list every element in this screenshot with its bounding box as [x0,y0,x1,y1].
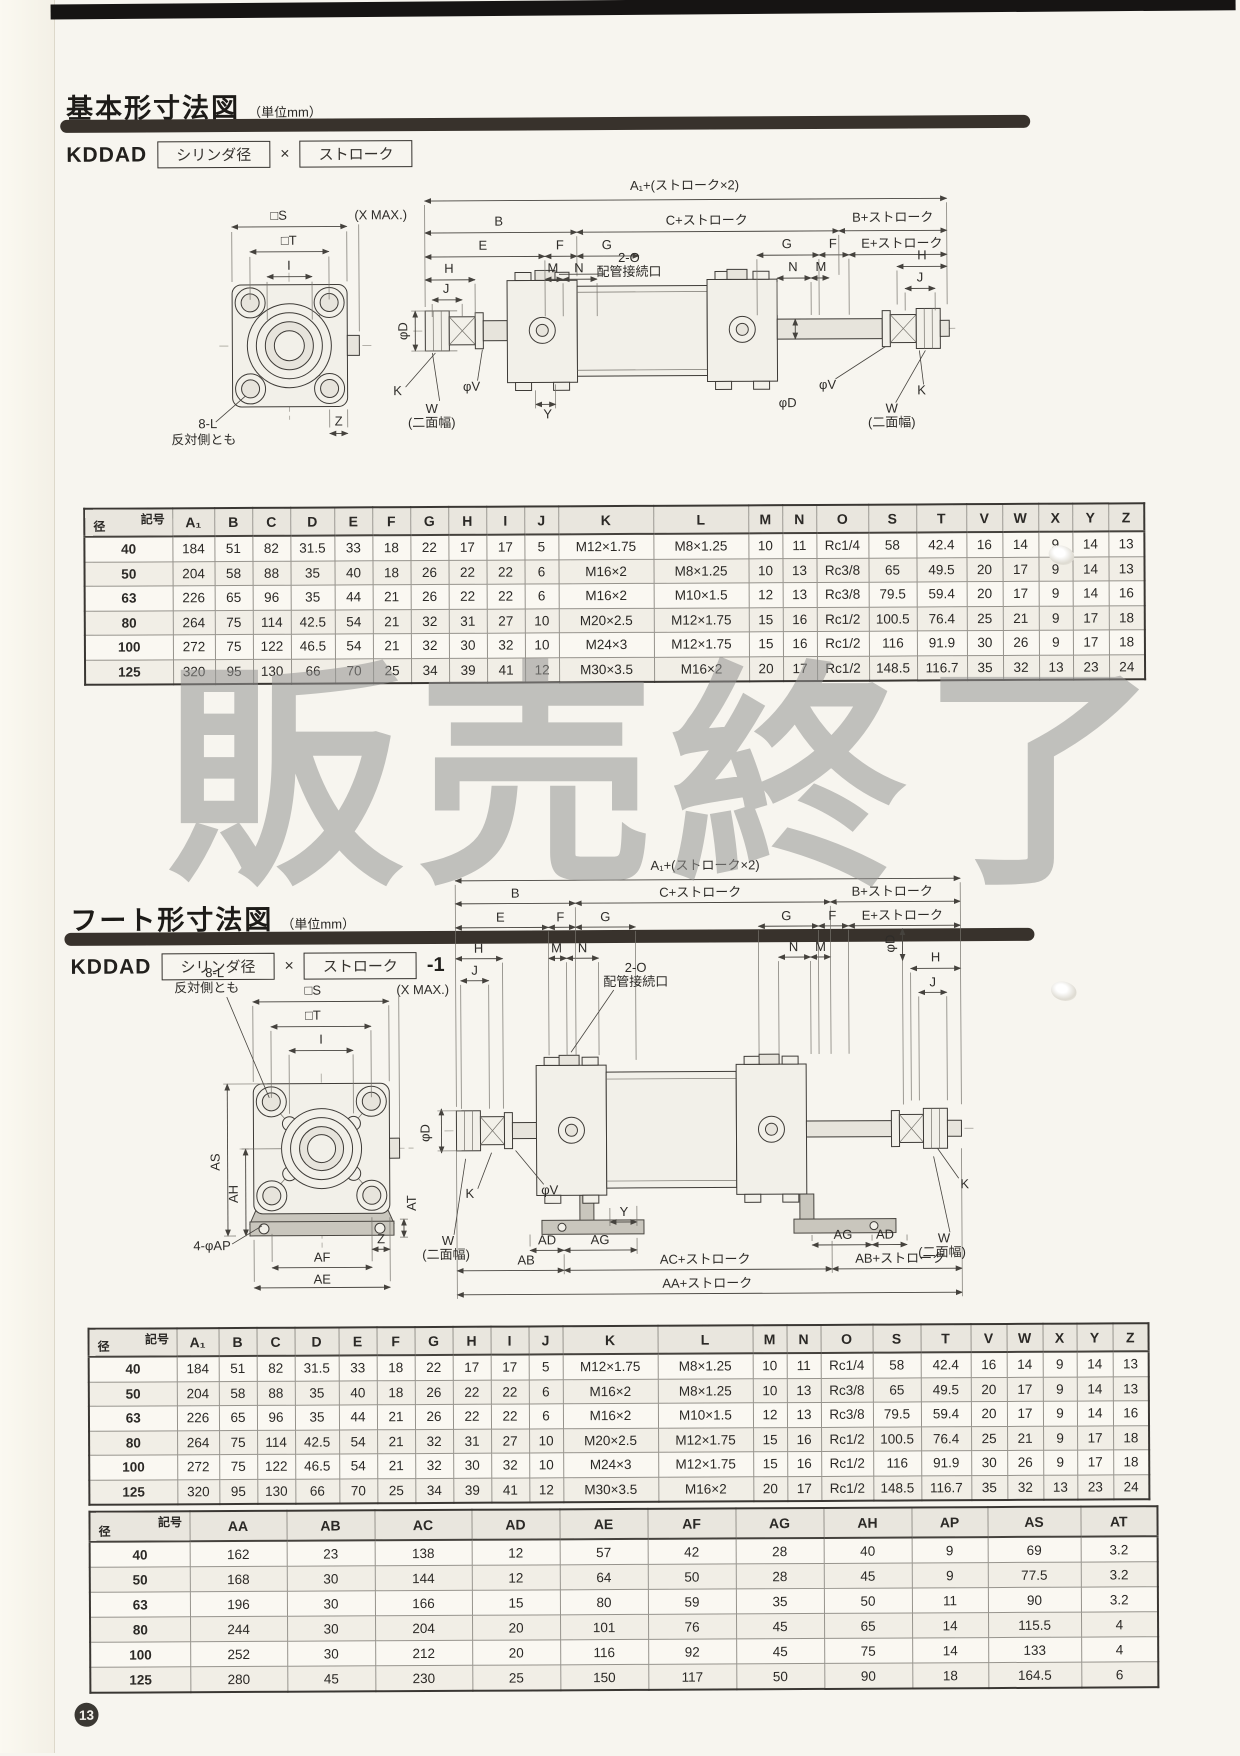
table-cell: 20 [472,1640,560,1665]
column-header: G [414,1327,452,1355]
dim-label-af: AF [314,1250,331,1265]
column-header: A₁ [176,1328,218,1356]
row-header-bore: 63 [90,1592,190,1618]
table-cell: 22 [487,584,525,609]
table-cell: 16 [966,532,1002,557]
table-cell: 114 [253,610,291,635]
table-cell: 30 [971,1450,1007,1475]
table-cell: 92 [648,1639,736,1664]
column-header: E [334,507,372,535]
dim-label-as: AS [208,1153,223,1171]
table-cell: 57 [560,1539,648,1565]
column-header: M [752,1325,786,1353]
table-cell: 14 [1073,581,1109,606]
dim-label-l8: 8-L [198,416,217,431]
table-cell: 41 [487,657,525,682]
table-cell: 15 [753,1452,787,1477]
table-cell: 162 [190,1541,287,1567]
dim-label-ad: AD [876,1227,894,1242]
dim-label-phiv: φV [819,377,837,392]
table-corner-cell: 記号径 [88,1328,176,1356]
foot-dimension-table: 記号径A₁BCDEFGHIJKLMNOSTVWXYZ40184518231.53… [87,1322,1150,1506]
table-cell: 35 [971,1475,1007,1500]
basic-form-technical-drawing: □S(X MAX.)□TIZ8-L反対側ともA₁+(ストローク×2)BC+ストロ… [126,165,1168,470]
table-cell: 17 [1002,557,1038,582]
table-cell: 34 [415,1478,453,1503]
column-header: H [452,1327,490,1355]
row-header-bore: 80 [85,610,173,635]
table-cell: 32 [1007,1475,1043,1500]
table-cell: 13 [1108,556,1144,581]
table-cell: 14 [1077,1401,1113,1426]
row-header-bore: 50 [89,1381,177,1406]
dim-label-i: I [319,1032,323,1047]
table-cell: 65 [824,1613,912,1638]
dim-label-cst: C+ストローク [659,884,741,899]
table-cell: 17 [787,1476,821,1501]
table-cell: M8×1.25 [658,1378,753,1403]
table-cell: Rc3/8 [821,1378,873,1403]
table-cell: 26 [1007,1450,1043,1475]
stroke-box: ストローク [299,140,412,168]
dim-label-h: H [444,261,453,276]
dim-label-n: N [574,260,583,275]
column-header: AB [286,1510,374,1540]
table-cell: 22 [486,559,524,584]
table-cell: 35 [291,585,335,610]
dim-label-m: M [815,259,826,274]
table-cell: 20 [472,1615,560,1640]
table-cell: Rc1/4 [821,1353,873,1378]
dim-label-k: K [917,382,926,397]
table-cell: 21 [377,1429,415,1454]
table-cell: 79.5 [869,582,917,607]
table-cell: 59 [648,1589,736,1614]
row-header-bore: 40 [89,1356,177,1381]
table-cell: 27 [487,608,525,633]
table-cell: 17 [448,535,486,560]
table-cell: M12×1.75 [558,534,653,559]
column-header: C [256,1328,294,1356]
table-cell: 69 [988,1537,1081,1563]
table-cell: 20 [967,581,1003,606]
dim-label-w2: (二面幅) [408,415,456,430]
table-cell: M12×1.75 [563,1354,658,1379]
table-cell: 272 [173,635,215,660]
column-header: E [338,1327,376,1355]
table-cell: 16 [783,631,817,656]
dim-label-k: K [465,1186,474,1201]
table-cell: 18 [377,1355,415,1380]
table-cell: 9 [1043,1377,1077,1402]
dim-label-w: W [938,1230,951,1245]
dim-label-e: E [478,238,487,253]
dim-label-phid: φD [417,1124,432,1142]
table-cell: 49.5 [916,557,966,582]
table-cell: 31 [449,609,487,634]
table-cell: 10 [525,608,559,633]
table-cell: 212 [375,1640,472,1666]
table-cell: 320 [173,659,215,684]
table-cell: 13 [1113,1351,1149,1376]
table-cell: 148.5 [873,1475,921,1500]
table-cell: 41 [491,1477,529,1502]
row-header-bore: 100 [85,635,173,660]
dim-label-w: W [426,401,439,416]
table-cell: 50 [648,1564,736,1589]
table-cell: 33 [334,535,372,560]
row-header-bore: 50 [84,561,172,586]
table-cell: 96 [253,585,291,610]
column-header: AD [471,1509,559,1539]
dim-label-ad: AD [538,1232,556,1247]
table-cell: 100.5 [869,606,917,631]
table-cell: 184 [177,1356,219,1381]
table-cell: 32 [487,633,525,658]
table-cell: 10 [525,633,559,658]
table-cell: 4 [1081,1612,1158,1637]
table-cell: M12×1.75 [654,632,749,657]
table-cell: 45 [736,1638,824,1663]
column-header: W [1002,504,1038,532]
table-cell: 14 [1072,531,1108,556]
table-cell: 12 [472,1539,560,1565]
table-cell: 320 [177,1479,219,1504]
table-cell: 11 [787,1353,821,1378]
table-cell: 17 [453,1355,491,1380]
dim-label-xmax: (X MAX.) [396,982,449,997]
table-corner-cell: 記号径 [89,1511,189,1542]
table-cell: 35 [967,655,1003,680]
table-cell: 15 [749,632,783,657]
row-header-bore: 125 [85,659,173,684]
table-cell: 10 [753,1353,787,1378]
table-cell: 30 [967,630,1003,655]
table-cell: M24×3 [563,1452,658,1477]
table-cell: 13 [782,558,816,583]
table-cell: 17 [1073,630,1109,655]
column-header: V [970,1324,1006,1352]
column-header: G [410,507,448,535]
table-cell: 13 [787,1378,821,1403]
row-header-bore: 125 [90,1667,190,1693]
table-cell: 9 [1043,1352,1077,1377]
table-cell: 70 [335,658,373,683]
table-cell: 76.4 [921,1426,971,1451]
column-header: Y [1076,1323,1112,1351]
dim-label-w: W [886,401,899,416]
table-cell: 58 [219,1381,257,1406]
column-header: V [966,504,1002,532]
table-cell: 16 [787,1427,821,1452]
table-cell: 101 [560,1614,648,1639]
table-cell: 122 [253,634,291,659]
dim-label-j: J [917,269,924,284]
dim-label-l8: 8-L [205,965,224,980]
table-cell: 13 [1043,1475,1077,1500]
dim-label-g: G [602,237,612,252]
table-cell: 116 [560,1639,648,1664]
table-cell: 25 [971,1426,1007,1451]
dim-label-f: F [829,236,837,251]
table-cell: 14 [1002,532,1038,557]
table-cell: 17 [1077,1425,1113,1450]
table-cell: 50 [736,1663,824,1689]
table-cell: 9 [912,1563,988,1588]
dim-label-g: G [600,909,610,924]
table-cell: 42.4 [921,1352,971,1377]
table-cell: 26 [1003,630,1039,655]
dim-label-aast: AA+ストローク [662,1275,752,1290]
table-cell: 13 [1039,655,1073,680]
page-number-badge: 13 [74,1703,98,1727]
table-cell: 30 [449,633,487,658]
column-header: O [820,1325,872,1353]
table-cell: 30 [287,1616,375,1641]
table-cell: Rc1/2 [817,607,869,632]
table-cell: 13 [1113,1376,1149,1401]
table-cell: 9 [1043,1426,1077,1451]
dim-label-f: F [828,908,836,923]
dim-label-z: Z [335,413,343,428]
table-cell: 21 [1007,1426,1043,1451]
table-cell: 16 [1109,581,1145,606]
table-cell: 58 [873,1352,921,1377]
table-cell: 12 [749,583,783,608]
table-cell: M16×2 [654,656,749,681]
dim-label-k: K [960,1176,969,1191]
table-cell: 75 [824,1638,912,1663]
table-cell: 280 [190,1666,287,1692]
model-designation-basic: KDDAD シリンダ径 × ストローク [66,140,412,169]
side-view-cylinder [413,268,960,391]
column-header: M [748,505,782,533]
table-cell: 5 [529,1354,563,1379]
column-header: AS [987,1507,1080,1537]
table-cell: 42 [648,1538,736,1564]
row-header-bore: 50 [90,1567,190,1593]
table-cell: 51 [214,536,252,561]
table-cell: 54 [339,1454,377,1479]
table-cell: 59.4 [921,1402,971,1427]
table-corner-cell: 記号径 [84,508,172,536]
column-header: B [214,508,252,536]
dim-label-m: M [547,260,558,275]
table-cell: Rc3/8 [817,582,869,607]
table-cell: 14 [1077,1376,1113,1401]
table-cell: 42.5 [291,609,335,634]
table-cell: 13 [787,1402,821,1427]
column-header: K [562,1326,657,1354]
dim-label-a1st: A₁+(ストローク×2) [630,177,739,193]
table-cell: 88 [257,1381,295,1406]
table-cell: 46.5 [291,634,335,659]
column-header: L [653,505,748,533]
table-cell: M16×2 [563,1379,658,1404]
table-cell: 244 [190,1616,287,1642]
table-cell: 18 [372,560,410,585]
front-view-flange [219,272,373,420]
table-cell: 18 [1109,605,1145,630]
table-cell: 27 [491,1428,529,1453]
table-row: 1252804523025150117509018164.56 [90,1662,1158,1693]
table-cell: 35 [290,560,334,585]
table-cell: 42.5 [295,1429,339,1454]
dim-label-w: W [442,1233,455,1248]
table-cell: 88 [252,561,290,586]
column-header: J [524,506,558,534]
table-cell: 22 [491,1404,529,1429]
dim-label-h: H [474,941,483,956]
table-cell: 40 [334,560,372,585]
dim-label-j: J [471,963,478,978]
dim-label-k: K [393,383,402,398]
table-cell: 204 [177,1381,219,1406]
table-cell: 25 [967,606,1003,631]
table-cell: 264 [173,610,215,635]
table-cell: 66 [291,658,335,683]
dim-label-f: F [556,237,564,252]
table-cell: 31 [453,1429,491,1454]
table-cell: 264 [177,1430,219,1455]
table-cell: 42.4 [916,532,966,557]
column-header: Z [1108,503,1144,531]
table-cell: 13 [1108,531,1144,556]
table-cell: 10 [529,1428,563,1453]
table-cell: 168 [190,1566,287,1592]
dim-label-cst: C+ストローク [666,212,748,227]
column-header: Z [1112,1323,1148,1351]
table-cell: 35 [295,1380,339,1405]
dim-label-y: Y [543,406,552,421]
column-header: D [290,507,334,535]
dim-label-m: M [815,939,826,954]
table-cell: Rc1/2 [821,1427,873,1452]
column-header: C [252,508,290,536]
dim-label-h: H [917,247,926,262]
table-cell: 20 [749,656,783,681]
table-cell: 90 [824,1663,912,1689]
table-cell: 10 [748,533,782,558]
corner-label-symbol: 記号 [158,1513,182,1530]
table-cell: 45 [736,1613,824,1638]
row-header-bore: 80 [89,1430,177,1455]
table-cell: 18 [912,1663,988,1689]
dim-label-g: G [782,236,792,251]
table-cell: M30×3.5 [559,657,654,682]
column-header: O [816,505,868,533]
table-cell: 272 [177,1455,219,1480]
table-cell: 138 [375,1540,472,1566]
table-cell: 16 [1113,1401,1149,1426]
table-cell: 35 [295,1405,339,1430]
dim-label-s: □S [304,983,321,998]
table-cell: 20 [971,1377,1007,1402]
table-cell: 12 [525,657,559,682]
table-cell: M16×2 [658,1476,753,1501]
table-cell: 30 [287,1566,375,1591]
dim-label-acst: AC+ストローク [660,1251,751,1266]
table-cell: 17 [1007,1401,1043,1426]
column-header: S [872,1324,920,1352]
table-cell: 64 [560,1564,648,1589]
table-cell: 22 [449,584,487,609]
table-cell: 13 [783,582,817,607]
table-cell: M16×2 [559,583,654,608]
column-header: AP [911,1507,987,1537]
column-header: H [448,507,486,535]
corner-label-bore: 径 [99,1523,111,1540]
table-cell: 16 [787,1451,821,1476]
table-cell: M20×2.5 [559,608,654,633]
table-cell: 9 [1039,581,1073,606]
table-cell: 21 [1003,606,1039,631]
column-header: A₁ [172,508,214,536]
table-cell: 26 [411,584,449,609]
table-cell: 54 [339,1429,377,1454]
table-cell: 95 [215,659,253,684]
table-row: 1253209513066702534394112M30×3.5M16×2201… [89,1474,1149,1505]
table-cell: 24 [1109,654,1145,679]
table-cell: 58 [214,561,252,586]
table-cell: 148.5 [869,655,917,680]
table-cell: 31.5 [290,535,334,560]
table-cell: 16 [783,607,817,632]
column-header: K [558,506,653,534]
table-cell: 24 [1113,1474,1149,1499]
table-cell: 28 [736,1563,824,1588]
table-cell: 90 [988,1587,1081,1612]
table-cell: 15 [472,1590,560,1615]
table-cell: 46.5 [295,1454,339,1479]
column-header: B [218,1328,256,1356]
dim-label-y: Y [620,1204,629,1219]
row-header-bore: 40 [84,536,172,561]
column-header: N [782,505,816,533]
table-cell: 17 [783,656,817,681]
table-cell: 32 [415,1429,453,1454]
dim-label-o2: 2-O [625,960,647,975]
column-header: X [1042,1324,1076,1352]
table-cell: M8×1.25 [653,558,748,583]
table-cell: 22 [410,535,448,560]
dim-label-xmax: (X MAX.) [354,207,407,222]
table-cell: 76 [648,1614,736,1639]
table-cell: 6 [1081,1662,1158,1688]
table-cell: 32 [411,633,449,658]
table-cell: 5 [524,534,558,559]
table-cell: 77.5 [988,1562,1081,1587]
dim-label-m: M [551,940,562,955]
table-cell: 82 [257,1356,295,1381]
table-cell: Rc1/2 [821,1451,873,1476]
table-cell: 3.2 [1081,1562,1158,1587]
table-cell: 21 [377,1454,415,1479]
table-cell: 3.2 [1081,1536,1158,1562]
table-cell: 49.5 [921,1377,971,1402]
column-header: I [490,1326,528,1354]
table-cell: M12×1.75 [658,1427,753,1452]
table-cell: M8×1.25 [653,533,748,558]
table-cell: 6 [524,559,558,584]
front-view-flange-foot [239,1073,414,1248]
table-cell: 164.5 [988,1662,1081,1688]
row-header-bore: 100 [89,1455,177,1480]
table-cell: 10 [529,1453,563,1478]
dim-label-t: □T [305,1008,321,1023]
table-cell: M10×1.5 [654,583,749,608]
column-header: F [376,1327,414,1355]
